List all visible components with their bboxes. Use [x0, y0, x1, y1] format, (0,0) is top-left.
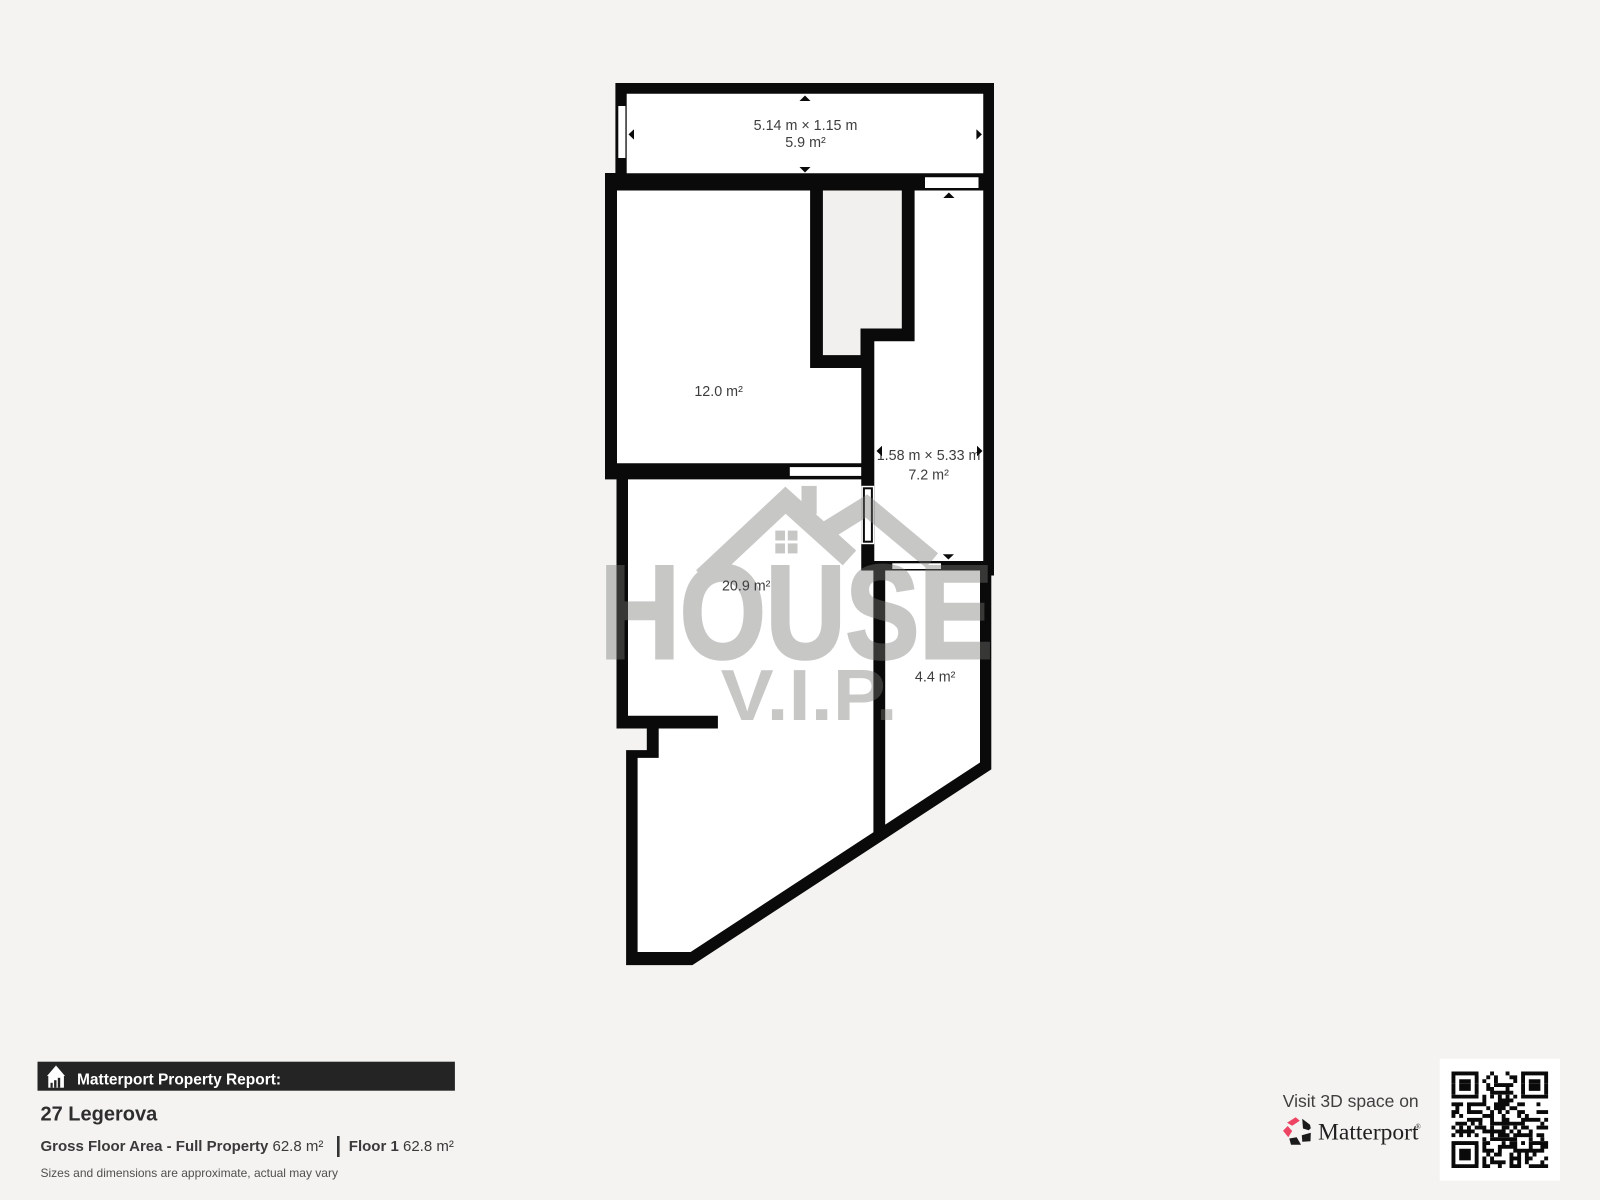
svg-text:20.9 m²: 20.9 m²	[722, 579, 771, 595]
svg-text:Floor 1 62.8 m²: Floor 1 62.8 m²	[349, 1138, 454, 1155]
svg-text:Gross Floor Area - Full Proper: Gross Floor Area - Full Property 62.8 m²	[41, 1138, 324, 1155]
svg-text:1.58 m × 5.33 m: 1.58 m × 5.33 m	[877, 448, 981, 464]
svg-text:12.0 m²: 12.0 m²	[694, 384, 743, 400]
svg-text:5.9 m²: 5.9 m²	[785, 135, 826, 151]
svg-text:27 Legerova: 27 Legerova	[41, 1104, 159, 1126]
svg-text:4.4 m²: 4.4 m²	[915, 670, 956, 686]
svg-text:Sizes and dimensions are appro: Sizes and dimensions are approximate, ac…	[41, 1166, 338, 1180]
svg-text:Matterport Property Report:: Matterport Property Report:	[77, 1071, 281, 1088]
svg-text:®: ®	[1416, 1123, 1422, 1131]
svg-text:7.2 m²: 7.2 m²	[908, 468, 949, 484]
svg-text:5.14 m × 1.15 m: 5.14 m × 1.15 m	[754, 118, 858, 134]
svg-text:Visit 3D space on: Visit 3D space on	[1283, 1091, 1419, 1111]
svg-text:Matterport: Matterport	[1318, 1120, 1419, 1146]
svg-text:V.I.P.: V.I.P.	[721, 656, 898, 736]
